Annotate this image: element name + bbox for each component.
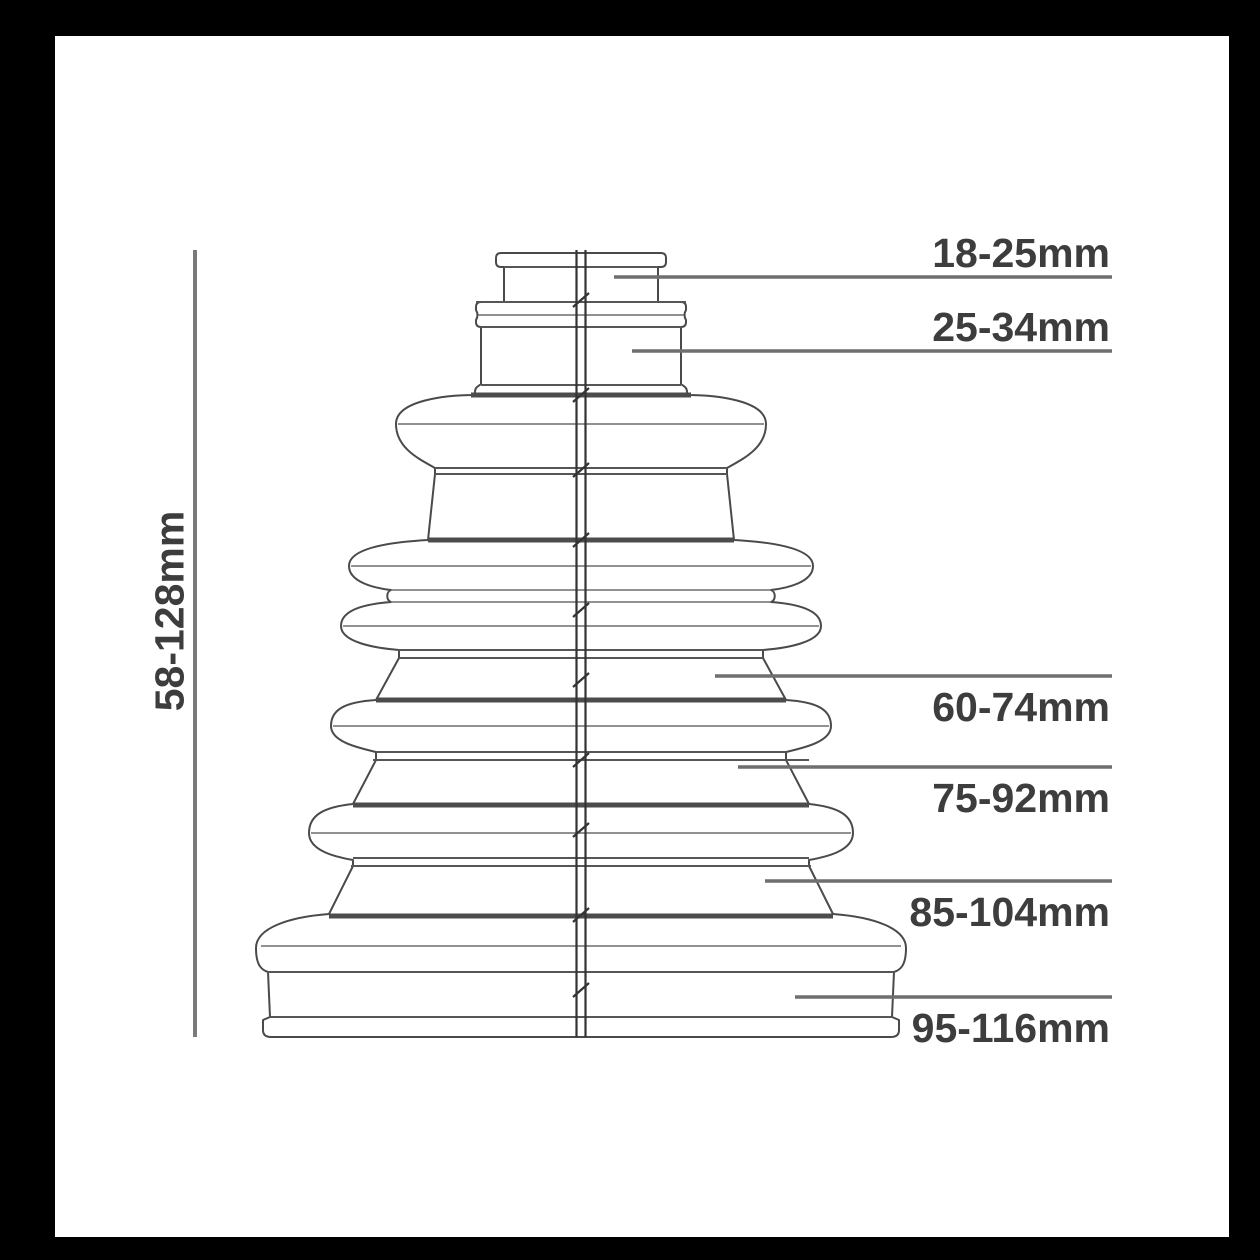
dim-label-25-34: 25-34mm [932, 307, 1110, 348]
dim-label-75-92: 75-92mm [932, 778, 1110, 819]
height-label: 58-128mm [150, 511, 191, 712]
black-frame: 18-25mm 25-34mm 60-74mm 75-92mm 85-104mm… [0, 0, 1260, 1260]
dim-label-95-116: 95-116mm [912, 1008, 1110, 1049]
cv-boot-outline [256, 253, 906, 1037]
dim-label-60-74: 60-74mm [932, 687, 1110, 728]
dim-label-85-104: 85-104mm [909, 892, 1110, 933]
dim-label-18-25: 18-25mm [932, 233, 1110, 274]
